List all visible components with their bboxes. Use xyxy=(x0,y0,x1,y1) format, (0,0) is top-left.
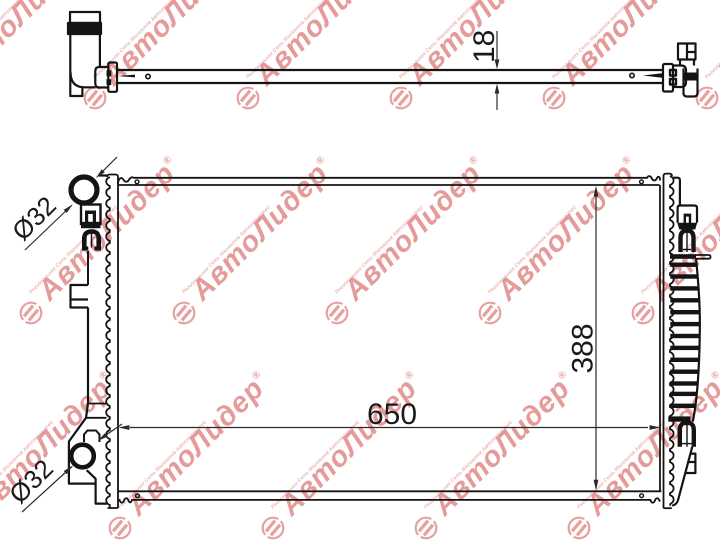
svg-text:18: 18 xyxy=(468,30,501,63)
svg-text:Ø32: Ø32 xyxy=(6,190,62,246)
svg-text:650: 650 xyxy=(367,398,417,431)
svg-text:388: 388 xyxy=(567,323,600,373)
